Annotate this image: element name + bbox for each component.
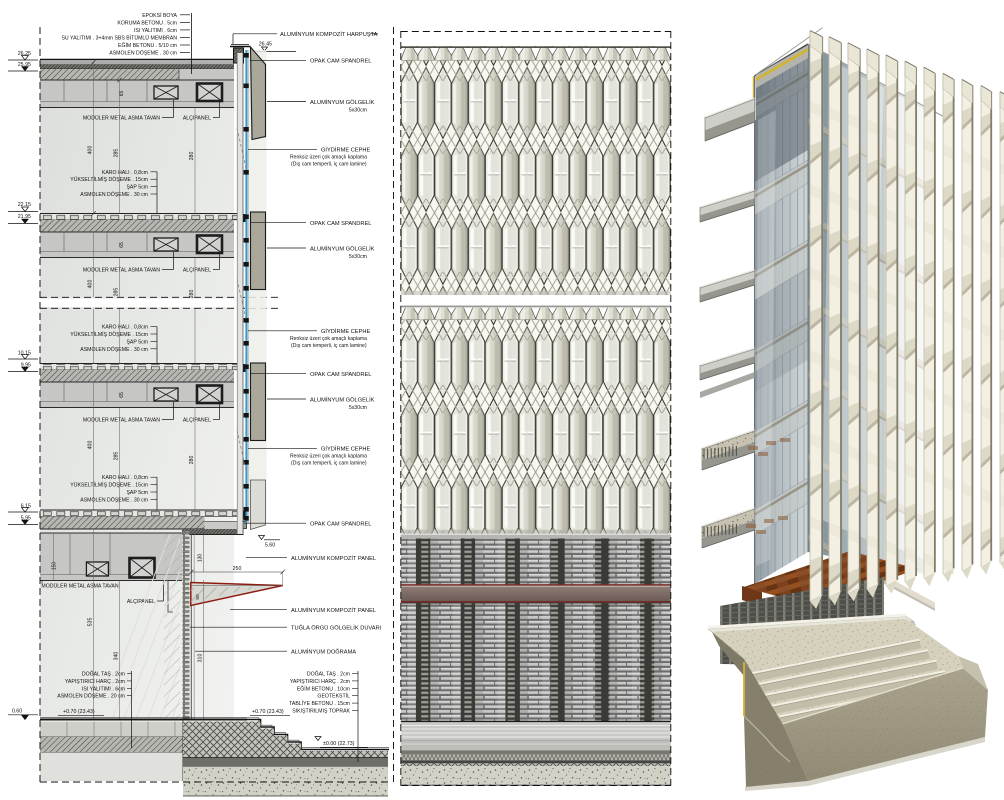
svg-text:YÜKSELTİLMİŞ DÖŞEME . 15cm: YÜKSELTİLMİŞ DÖŞEME . 15cm: [70, 482, 148, 489]
svg-text:340: 340: [113, 652, 119, 661]
svg-text:+0.70 (23.43): +0.70 (23.43): [63, 709, 95, 715]
svg-text:TABLİYE BETONU . 15cm: TABLİYE BETONU . 15cm: [289, 700, 350, 707]
svg-text:KARO HALI . 0,8cm: KARO HALI . 0,8cm: [102, 325, 148, 331]
svg-text:250: 250: [233, 566, 242, 572]
svg-text:ALUMİNYUM GÖLGELİK: ALUMİNYUM GÖLGELİK: [310, 99, 375, 106]
svg-text:ALUMİNYUM DOĞRAMA: ALUMİNYUM DOĞRAMA: [291, 649, 356, 656]
svg-text:MODÜLER METAL ASMA TAVAN: MODÜLER METAL ASMA TAVAN: [83, 115, 160, 122]
svg-text:ALUMİNYUM GÖLGELİK: ALUMİNYUM GÖLGELİK: [310, 397, 375, 404]
svg-text:130: 130: [198, 554, 204, 563]
svg-text:OPAK CAM SPANDREL: OPAK CAM SPANDREL: [310, 372, 371, 378]
svg-text:0.60: 0.60: [12, 709, 22, 715]
svg-text:285: 285: [113, 149, 119, 158]
svg-text:MODÜLER METAL ASMA TAVAN: MODÜLER METAL ASMA TAVAN: [41, 583, 118, 590]
svg-text:ASMOLEN DÖŞEME . 30 cm: ASMOLEN DÖŞEME . 30 cm: [80, 346, 148, 353]
svg-text:+0.70 (23.43): +0.70 (23.43): [252, 709, 284, 715]
svg-text:ASMOLEN DÖŞEME . 30 cm: ASMOLEN DÖŞEME . 30 cm: [80, 496, 148, 503]
svg-text:YAPIŞTIRICI HARÇ . 2cm: YAPIŞTIRICI HARÇ . 2cm: [290, 679, 350, 685]
svg-text:MODÜLER METAL ASMA TAVAN: MODÜLER METAL ASMA TAVAN: [83, 417, 160, 424]
svg-text:KARO HALI . 0,8cm: KARO HALI . 0,8cm: [102, 170, 148, 176]
svg-text:285: 285: [113, 288, 119, 297]
svg-text:5.60: 5.60: [265, 543, 275, 549]
svg-text:400: 400: [88, 280, 94, 289]
svg-text:OPAK CAM SPANDREL: OPAK CAM SPANDREL: [310, 59, 371, 65]
svg-text:(Dış cam temperli, iç cam lami: (Dış cam temperli, iç cam lamine): [291, 343, 367, 349]
svg-text:Renksiz üzeri çok amaçlı kapla: Renksiz üzeri çok amaçlı kaplama: [290, 155, 367, 161]
svg-text:ALÇIPANEL: ALÇIPANEL: [183, 116, 211, 122]
svg-text:DOĞAL TAŞ . 2cm: DOĞAL TAŞ . 2cm: [307, 671, 350, 678]
svg-text:KARO HALI . 0,8cm: KARO HALI . 0,8cm: [102, 475, 148, 481]
svg-text:Renksiz üzeri çok amaçlı kapla: Renksiz üzeri çok amaçlı kaplama: [290, 454, 367, 460]
svg-text:EĞİM BETONU . 10cm: EĞİM BETONU . 10cm: [297, 685, 350, 692]
svg-text:KORUMA BETONU . 5cm: KORUMA BETONU . 5cm: [117, 20, 177, 26]
svg-text:GEOTEKSTİL: GEOTEKSTİL: [317, 693, 350, 700]
svg-text:ALÇIPANEL: ALÇIPANEL: [127, 599, 155, 605]
svg-text:ASMOLEN DÖŞEME . 30 cm: ASMOLEN DÖŞEME . 30 cm: [80, 191, 148, 198]
svg-text:285: 285: [113, 452, 119, 461]
svg-text:ALÇIPANEL: ALÇIPANEL: [183, 268, 211, 274]
svg-text:65: 65: [119, 242, 125, 248]
svg-text:400: 400: [88, 146, 94, 155]
svg-text:±0.00 (22.73): ±0.00 (22.73): [323, 741, 355, 747]
svg-text:280: 280: [189, 456, 195, 465]
svg-text:OPAK CAM SPANDREL: OPAK CAM SPANDREL: [310, 221, 371, 227]
svg-text:280: 280: [189, 152, 195, 161]
svg-text:GİYDİRME CEPHE: GİYDİRME CEPHE: [321, 328, 371, 335]
svg-text:YÜKSELTİLMİŞ DÖŞEME . 15cm: YÜKSELTİLMİŞ DÖŞEME . 15cm: [70, 331, 148, 338]
svg-text:ALUMİNYUM KOMPOZİT PANEL: ALUMİNYUM KOMPOZİT PANEL: [291, 555, 376, 562]
svg-text:SU YALITIMI . 3+4mm SBS BİTÜML: SU YALITIMI . 3+4mm SBS BİTÜMLÜ MEMBRAN: [61, 34, 177, 41]
svg-text:535: 535: [88, 618, 94, 627]
svg-text:280: 280: [189, 290, 195, 299]
svg-text:65: 65: [119, 91, 125, 97]
svg-text:ALÇIPANEL: ALÇIPANEL: [183, 418, 211, 424]
svg-text:ASMOLEN DÖŞEME . 30 cm: ASMOLEN DÖŞEME . 30 cm: [109, 50, 177, 57]
svg-text:5x30cm: 5x30cm: [349, 254, 367, 260]
svg-text:TUĞLA ÖRGÜ GÖLGELİK DUVARI: TUĞLA ÖRGÜ GÖLGELİK DUVARI: [291, 625, 382, 632]
svg-text:400: 400: [88, 441, 94, 450]
svg-text:65: 65: [119, 392, 125, 398]
svg-text:OPAK CAM SPANDREL: OPAK CAM SPANDREL: [310, 522, 371, 528]
svg-text:YAPIŞTIRICI HARÇ . 2cm: YAPIŞTIRICI HARÇ . 2cm: [65, 679, 125, 685]
svg-text:EPOKSİ BOYA: EPOKSİ BOYA: [142, 12, 177, 19]
svg-text:ALUMİNYUM KOMPOZİT HARPUŞTA: ALUMİNYUM KOMPOZİT HARPUŞTA: [280, 31, 378, 38]
svg-text:(Dış cam temperli, iç cam lami: (Dış cam temperli, iç cam lamine): [291, 461, 367, 467]
svg-text:310: 310: [198, 654, 204, 663]
svg-text:5x30cm: 5x30cm: [349, 405, 367, 411]
svg-text:SIKIŞTIRILMIŞ TOPRAK: SIKIŞTIRILMIŞ TOPRAK: [292, 709, 350, 715]
svg-text:Renksiz üzeri çok amaçlı kapla: Renksiz üzeri çok amaçlı kaplama: [290, 336, 367, 342]
svg-text:ŞAP 5cm: ŞAP 5cm: [126, 490, 148, 496]
svg-text:MODÜLER METAL ASMA TAVAN: MODÜLER METAL ASMA TAVAN: [83, 267, 160, 274]
svg-text:ISI YALITIMI . 6cm: ISI YALITIMI . 6cm: [134, 28, 177, 34]
svg-text:EĞİM BETONU . 5/10 cm: EĞİM BETONU . 5/10 cm: [118, 42, 177, 49]
svg-text:150: 150: [52, 562, 58, 571]
svg-text:ISI YALITIMI . 6cm: ISI YALITIMI . 6cm: [82, 686, 125, 692]
svg-text:ŞAP 5cm: ŞAP 5cm: [126, 339, 148, 345]
svg-text:ALUMİNYUM KOMPOZİT PANEL: ALUMİNYUM KOMPOZİT PANEL: [291, 607, 376, 614]
svg-text:GİYDİRME CEPHE: GİYDİRME CEPHE: [321, 446, 371, 453]
svg-text:DOĞAL TAŞ . 2cm: DOĞAL TAŞ . 2cm: [82, 671, 125, 678]
svg-text:(Dış cam temperli, iç cam lami: (Dış cam temperli, iç cam lamine): [291, 162, 367, 168]
svg-text:ŞAP 5cm: ŞAP 5cm: [126, 185, 148, 191]
svg-text:26.45: 26.45: [259, 42, 272, 48]
svg-text:ASMOLEN DÖŞEME . 20 cm: ASMOLEN DÖŞEME . 20 cm: [57, 693, 125, 700]
svg-text:ALUMİNYUM GÖLGELİK: ALUMİNYUM GÖLGELİK: [310, 246, 375, 253]
svg-text:GİYDİRME CEPHE: GİYDİRME CEPHE: [321, 147, 371, 154]
svg-text:5x30cm: 5x30cm: [349, 108, 367, 114]
svg-text:50: 50: [195, 594, 201, 600]
svg-text:YÜKSELTİLMİŞ DÖŞEME . 15cm: YÜKSELTİLMİŞ DÖŞEME . 15cm: [70, 176, 148, 183]
